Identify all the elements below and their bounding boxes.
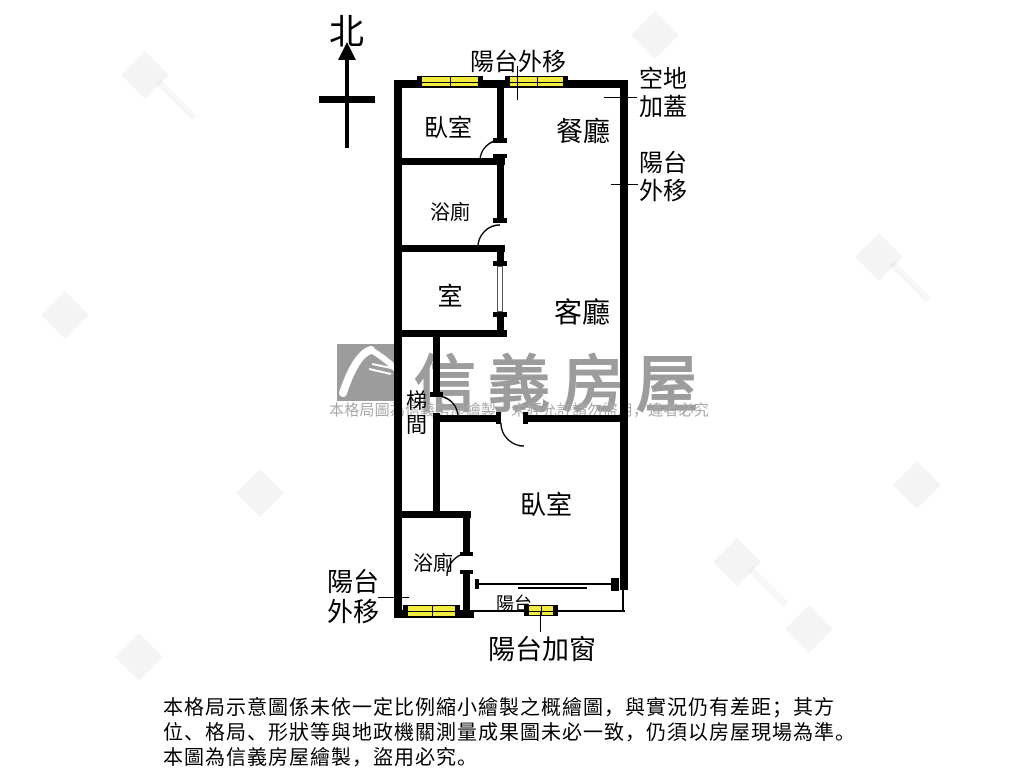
security-mark bbox=[41, 291, 89, 339]
door-jamb bbox=[493, 154, 507, 158]
door-jamb bbox=[493, 138, 507, 143]
north-arrow-crossbar bbox=[319, 96, 375, 103]
wall-hall-left bbox=[433, 415, 501, 422]
wall-bedroom1-bath1 bbox=[394, 158, 505, 165]
security-mark bbox=[889, 261, 931, 303]
leader-balcony-out-right bbox=[611, 184, 638, 185]
balcony-track-jamb bbox=[611, 578, 619, 591]
brand-watermark-notice: 本格局圖為信義房屋繪製，未經允許請勿盜用，違者必究 bbox=[329, 399, 709, 420]
wall-bath1-right bbox=[497, 165, 504, 218]
window-marker-bottom bbox=[403, 605, 460, 617]
room-label-dining: 餐廳 bbox=[543, 110, 623, 149]
wall-room-right-lower bbox=[497, 317, 504, 333]
security-mark bbox=[155, 79, 197, 121]
balcony-sliding-panel bbox=[518, 587, 587, 589]
leader-open-land bbox=[604, 97, 637, 98]
wall-bath1-room bbox=[394, 245, 505, 252]
annotation-balcony-add-window: 陽台加窗 bbox=[488, 628, 596, 667]
security-mark bbox=[747, 566, 789, 608]
wall-right-exterior bbox=[620, 80, 628, 590]
security-mark bbox=[121, 51, 169, 99]
door-jamb bbox=[493, 218, 507, 223]
wall-hall-right bbox=[523, 415, 628, 422]
annotation-open-land-cover: 空地加蓋 bbox=[639, 66, 691, 122]
wall-bath2-right-upper bbox=[463, 511, 470, 552]
floor-plan-image: 信義房屋 本格局圖為信義房屋繪製，未經允許請勿盜用，違者必究 北 bbox=[0, 0, 1024, 768]
window-marker-top-right bbox=[505, 76, 568, 87]
room-label-bath2: 浴廁 bbox=[393, 547, 473, 576]
room-label-room: 室 bbox=[410, 277, 490, 313]
wall-stair-right-lower bbox=[433, 413, 440, 513]
security-mark bbox=[713, 538, 761, 586]
room-label-living: 客廳 bbox=[542, 291, 622, 331]
security-mark bbox=[236, 469, 284, 517]
room-label-bedroom2: 臥室 bbox=[506, 485, 586, 522]
door-jamb bbox=[496, 412, 501, 424]
wall-bedroom1-dining bbox=[497, 80, 504, 138]
annotation-balcony-out-top: 陽台外移 bbox=[458, 42, 578, 77]
room-label-bedroom1: 臥室 bbox=[408, 108, 488, 143]
annotation-balcony-out-right: 陽台外移 bbox=[639, 150, 691, 206]
security-mark bbox=[893, 461, 941, 509]
door-jamb bbox=[430, 392, 443, 397]
disclaimer-line-3: 本圖為信義房屋繪製，盜用必究。 bbox=[163, 741, 478, 768]
annotation-balcony-out-bottom: 陽台外移 bbox=[327, 568, 383, 629]
wall-room-right-upper bbox=[497, 245, 504, 261]
security-mark bbox=[785, 605, 833, 653]
wall-room-bottom bbox=[394, 330, 507, 337]
security-mark bbox=[855, 233, 903, 281]
window-marker-top-left bbox=[417, 76, 483, 87]
wall-stair-right-upper bbox=[433, 330, 440, 392]
room-label-bath1: 浴廁 bbox=[410, 196, 490, 225]
balcony-sliding-track bbox=[477, 583, 617, 585]
balcony-right-edge bbox=[622, 588, 624, 612]
room-label-stair: 梯間 bbox=[406, 390, 430, 437]
room-window-marker bbox=[497, 266, 503, 312]
security-mark bbox=[631, 11, 679, 59]
balcony-track-jamb bbox=[475, 579, 479, 589]
room-label-balcony: 陽台 bbox=[474, 590, 554, 616]
security-mark bbox=[115, 633, 163, 681]
door-jamb bbox=[523, 412, 528, 424]
wall-bath2-right-lower bbox=[463, 574, 470, 617]
